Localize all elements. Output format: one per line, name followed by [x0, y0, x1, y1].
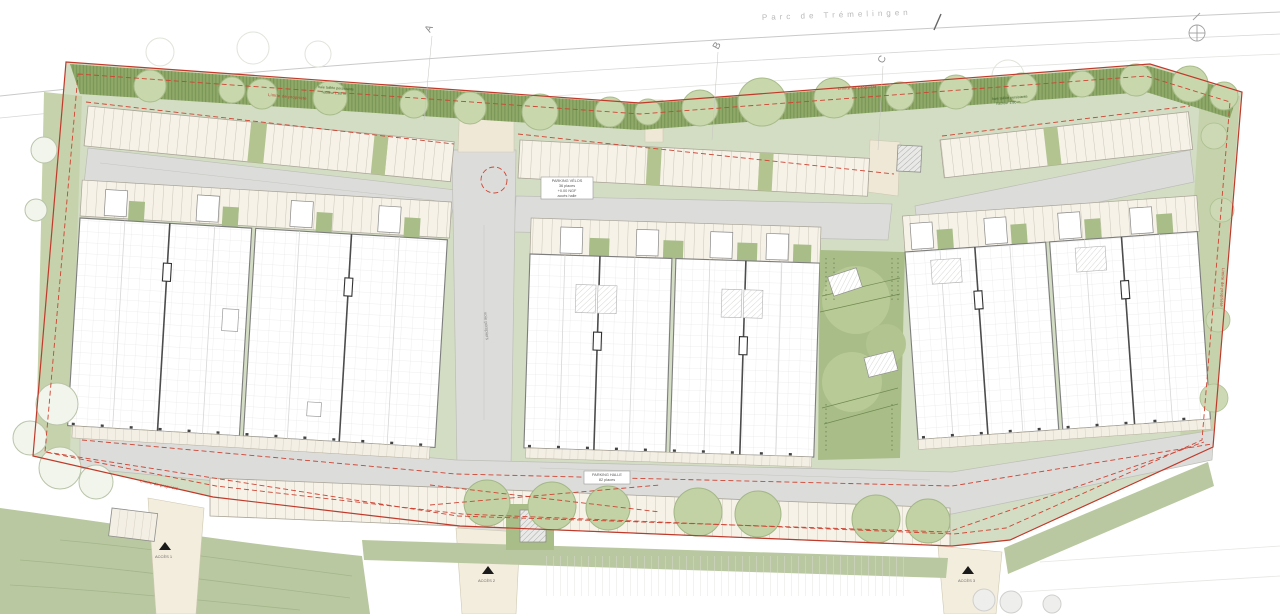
- svg-text:PARKING HALLE: PARKING HALLE: [592, 473, 622, 477]
- axis-labels: A B C: [423, 23, 889, 65]
- parking-note-top: PARKING VÉLOS 36 places +0.00 NGF accès …: [541, 177, 593, 199]
- tree-canopies-context: [973, 589, 1061, 613]
- axis-label-a: A: [423, 23, 436, 34]
- building-cluster-left: [67, 180, 452, 459]
- axis-label-b: B: [711, 40, 724, 51]
- svg-text:ACCÈS 2: ACCÈS 2: [478, 578, 496, 583]
- svg-text:accès halle: accès halle: [558, 194, 577, 198]
- building-hall-b1: [524, 254, 672, 452]
- svg-text:82 places: 82 places: [599, 478, 615, 482]
- building-cluster-right: [902, 196, 1213, 450]
- street-label: Parc de Trémelingen: [762, 8, 912, 22]
- svg-text:+0.00 NGF: +0.00 NGF: [558, 189, 577, 193]
- bike-shelter-top: [897, 145, 922, 172]
- parking-note-bottom: PARKING HALLE 82 places: [584, 471, 630, 484]
- courtyard: [818, 250, 906, 460]
- svg-text:PARKING VÉLOS: PARKING VÉLOS: [552, 178, 583, 183]
- site-plan-page: Parc de Trémelingen: [0, 0, 1280, 614]
- axis-label-c: C: [876, 54, 889, 66]
- building-hall-c2: [1050, 232, 1211, 430]
- north-marker: [1189, 13, 1205, 41]
- context-parking-hatch: [545, 556, 905, 596]
- svg-text:ACCÈS 3: ACCÈS 3: [958, 578, 976, 583]
- parking-stalls-bottom-left: [109, 508, 158, 541]
- site-plan-drawing: Parc de Trémelingen: [0, 0, 1280, 614]
- svg-text:ACCÈS 1: ACCÈS 1: [155, 554, 173, 559]
- svg-text:36 places: 36 places: [559, 184, 575, 188]
